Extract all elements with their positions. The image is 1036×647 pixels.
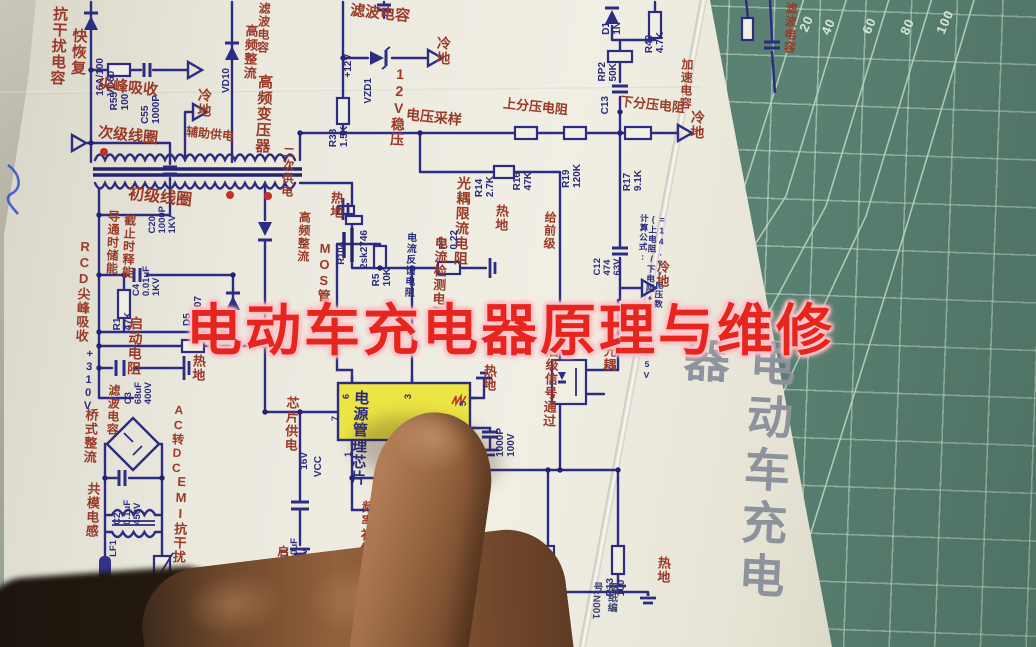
schematic-label: C12 474 63V [593, 258, 623, 275]
schematic-label: C3 68uF 400V [124, 382, 154, 404]
schematic-label: 7 [331, 416, 340, 421]
sheet-number: 图纸编号:N001 [587, 581, 619, 647]
schematic-label: 冷地 [435, 36, 451, 67]
schematic-label: R17 9.1K [623, 170, 644, 191]
overlay-title: 电动车充电器原理与维修 [186, 286, 835, 367]
schematic-label: 辅助供电 [185, 126, 234, 144]
schematic-label: C55 1000P [141, 95, 162, 124]
schematic-label: 芯片供电 [283, 396, 299, 453]
schematic-label: 光耦限流电阻 [455, 176, 471, 209]
schematic-label: 给前级 [542, 211, 556, 251]
schematic-label: 16V [300, 452, 311, 470]
paper-vertical-title: 电动车充电器 [656, 335, 804, 647]
schematic-label: 加速电容 [679, 58, 693, 87]
schematic-label: R104 [337, 242, 347, 265]
schematic-label: 高频整流 [296, 211, 311, 263]
schematic-label: 二次供电 [280, 146, 295, 198]
schematic-label: LF1 [109, 540, 119, 557]
schematic-label: 热地 [328, 191, 343, 220]
schematic-label: +310V [81, 348, 95, 413]
schematic-label: 上分压电阻 [502, 97, 568, 117]
schematic-label: 电压采样 [405, 107, 462, 127]
schematic-label: 导通时储能 [105, 210, 120, 275]
schematic-label: 3 [404, 394, 413, 399]
schematic-label: C20 1000P 1KV [148, 206, 178, 233]
schematic-label: R16 47K [513, 172, 534, 190]
schematic-label: AC转DC [169, 403, 185, 476]
schematic-label: 冷地 [654, 260, 669, 289]
schematic-label: 滤波电容 [349, 3, 410, 25]
schematic-label: 12V稳压 [389, 66, 407, 148]
schematic-label: R19 120K [562, 164, 583, 188]
schematic-label: 冷地 [689, 110, 705, 141]
schematic-label: 启动电阻 [127, 316, 143, 351]
schematic-label: C13 [601, 96, 612, 114]
schematic-label: R14 2.7K [475, 176, 496, 197]
photo-scene: 20406080100 [0, 0, 1036, 647]
schematic-label: 滤波电容 [783, 2, 797, 33]
schematic-label: 1 [344, 452, 353, 457]
schematic-label: R38 1.5K [329, 126, 350, 147]
schematic-label: R40 4.7K [645, 32, 666, 53]
schematic-label: +12V [344, 54, 355, 78]
schematic-label: RCD尖峰吸收 [74, 239, 92, 343]
schematic-label: 快恢复 [69, 28, 87, 77]
schematic-label: C2 0.1uF 450V [113, 500, 143, 525]
schematic-label: 滤波电容 [256, 2, 270, 43]
schematic-label: VCC [314, 456, 325, 477]
schematic-label: 下分压电阻 [619, 95, 685, 115]
schematic-label: 5 [459, 401, 468, 406]
schematic-label: 6 [342, 394, 351, 399]
schematic-label: RP2 50K [598, 62, 619, 81]
schematic-label: 电源管理芯片 [351, 390, 368, 427]
schematic-label: 次级线圈 [97, 125, 158, 147]
schematic-label: R5 10K [372, 268, 393, 286]
schematic-label: 滤波电容 [106, 384, 120, 413]
schematic-label: VD10 [222, 68, 233, 93]
schematic-label: 热地 [493, 204, 508, 233]
schematic-label: VZD1 [364, 78, 375, 104]
schematic-label: C4 0.01uF 1KV [132, 266, 162, 296]
schematic-label: 冷地 [196, 88, 212, 119]
schematic-label: 桥式整流 [82, 408, 98, 465]
schematic-label: 共模电感 [84, 482, 100, 539]
schematic-label: 抗干扰电容 [48, 6, 67, 87]
schematic-label: 初级线圈 [127, 187, 192, 210]
schematic-label: 高频变压器 [253, 74, 272, 155]
schematic-label: 电流检测电阻 [432, 236, 447, 267]
schematic-label: 2sk2746 [360, 230, 371, 269]
schematic-label: D1 1N [602, 22, 623, 35]
schematic-label: EMI抗干扰 [171, 474, 189, 565]
schematic-label: 热地 [481, 364, 496, 393]
